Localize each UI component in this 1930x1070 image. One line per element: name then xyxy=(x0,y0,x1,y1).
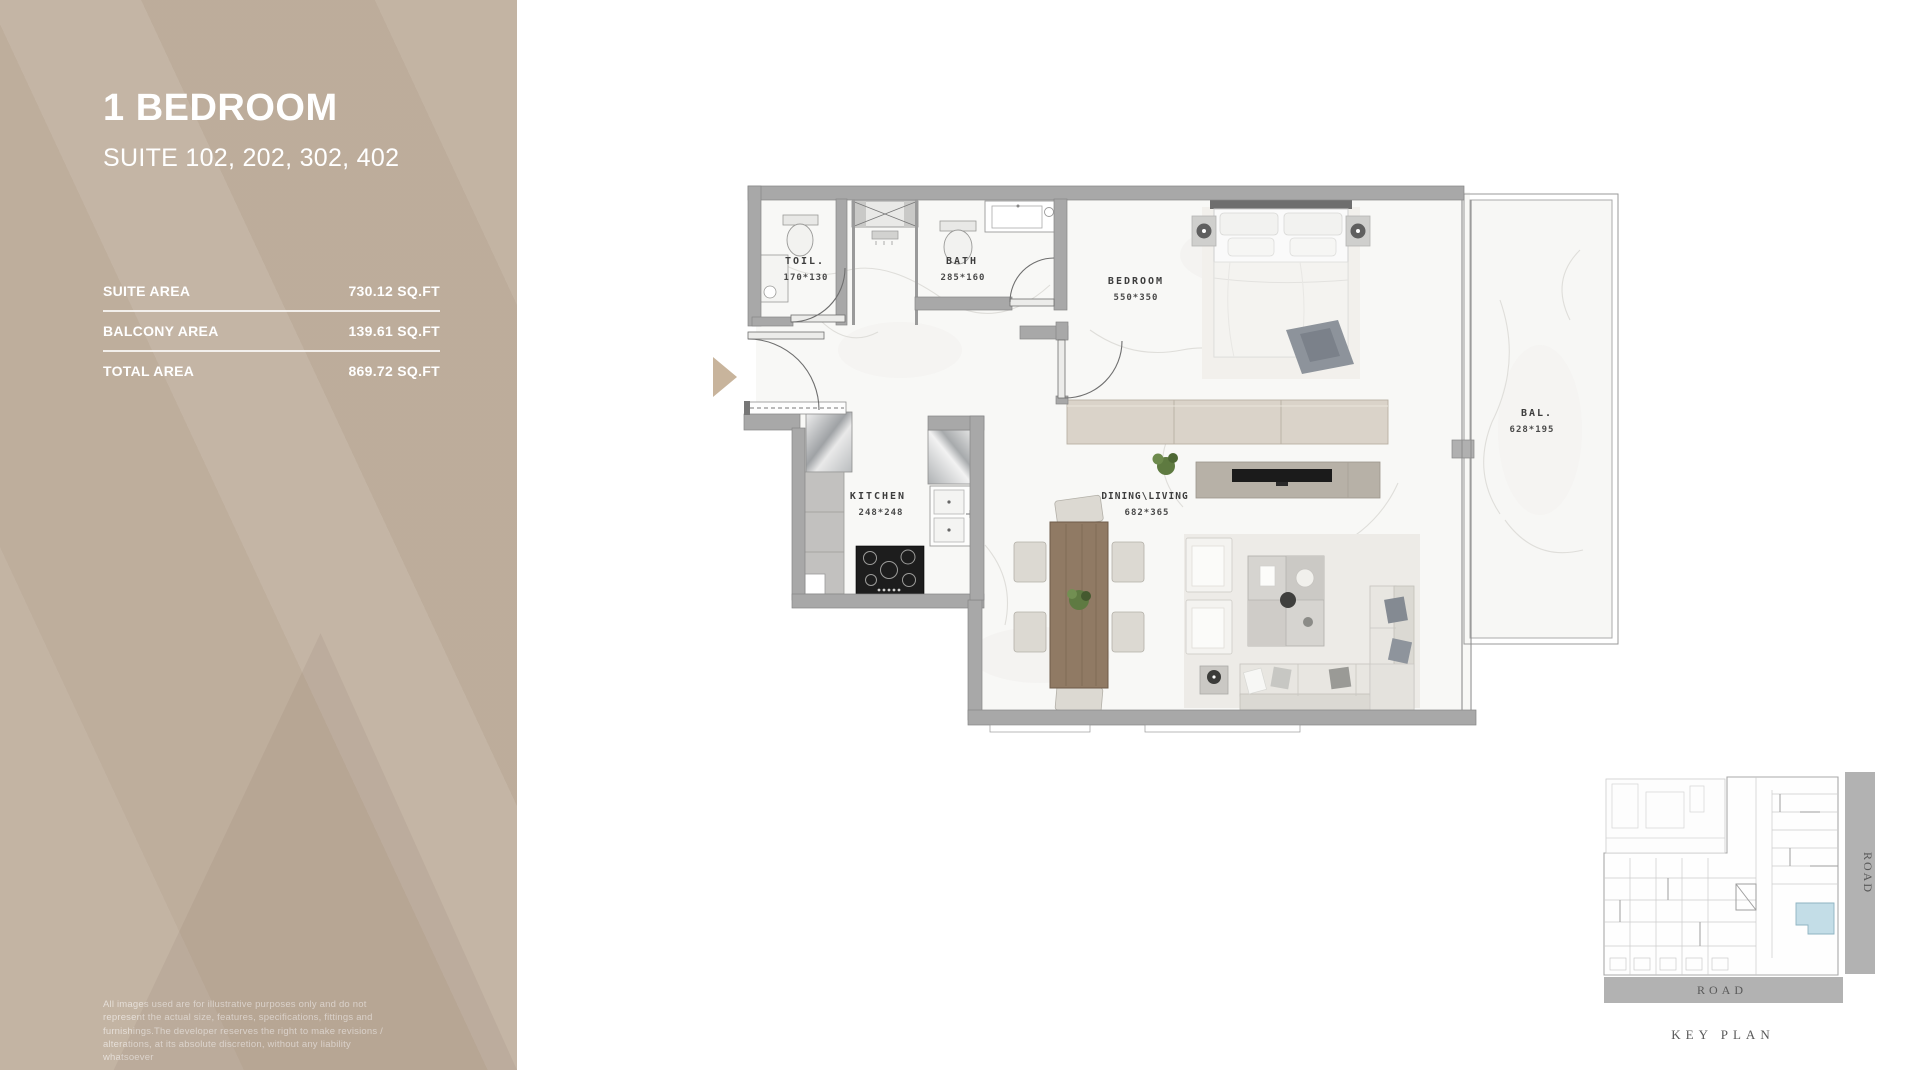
room-label-bath: BATH xyxy=(946,256,978,267)
side-table xyxy=(1200,666,1228,694)
kitchen-sink xyxy=(930,486,974,546)
room-label-balcony: BAL. xyxy=(1521,408,1553,419)
toilet xyxy=(787,224,813,256)
room-dims-dining-living: 682*365 xyxy=(1125,508,1170,518)
window-sills xyxy=(990,725,1300,732)
fridge xyxy=(806,412,852,472)
nightstand-left xyxy=(1192,216,1216,246)
room-dims-toilet: 170*130 xyxy=(784,273,829,283)
road-label-bottom: ROAD xyxy=(1697,983,1747,997)
room-label-toilet: TOIL. xyxy=(785,256,825,267)
room-dims-kitchen: 248*248 xyxy=(859,508,904,518)
room-dims-balcony: 628*195 xyxy=(1510,425,1555,435)
dining-chair xyxy=(1055,684,1103,714)
road-label-right: ROAD xyxy=(1861,852,1875,894)
nightstand-right xyxy=(1346,216,1370,246)
room-dims-bedroom: 550*350 xyxy=(1114,293,1159,303)
floor-plan: TOIL. 170*130 BATH 285*160 BEDROOM 550*3… xyxy=(0,0,1930,1070)
room-label-kitchen: KITCHEN xyxy=(850,491,906,502)
bed xyxy=(1210,199,1354,374)
shower-head xyxy=(872,231,898,239)
room-dims-bath: 285*160 xyxy=(941,273,986,283)
entry-threshold xyxy=(744,401,846,415)
tv-console xyxy=(1196,462,1380,498)
room-label-dining-living: DINING\LIVING xyxy=(1101,491,1188,502)
key-plan-amenity xyxy=(1606,779,1725,853)
headboard xyxy=(1210,199,1352,209)
key-plan-title: KEY PLAN xyxy=(1671,1027,1774,1042)
wardrobe xyxy=(1067,400,1388,444)
dining-chair xyxy=(1014,612,1046,652)
armchair xyxy=(1186,538,1232,592)
entry-arrow-icon xyxy=(713,357,737,397)
coffee-table xyxy=(1248,556,1324,646)
room-label-bedroom: BEDROOM xyxy=(1108,276,1164,287)
armchair xyxy=(1186,600,1232,654)
key-plan: ROAD ROAD KEY PLAN xyxy=(1604,772,1875,1042)
stove xyxy=(856,546,924,594)
kitchen-counter-top xyxy=(928,430,972,484)
dining-chair xyxy=(1112,542,1144,582)
dining-chair xyxy=(1112,612,1144,652)
tv xyxy=(1232,469,1332,482)
dining-chair xyxy=(1014,542,1046,582)
